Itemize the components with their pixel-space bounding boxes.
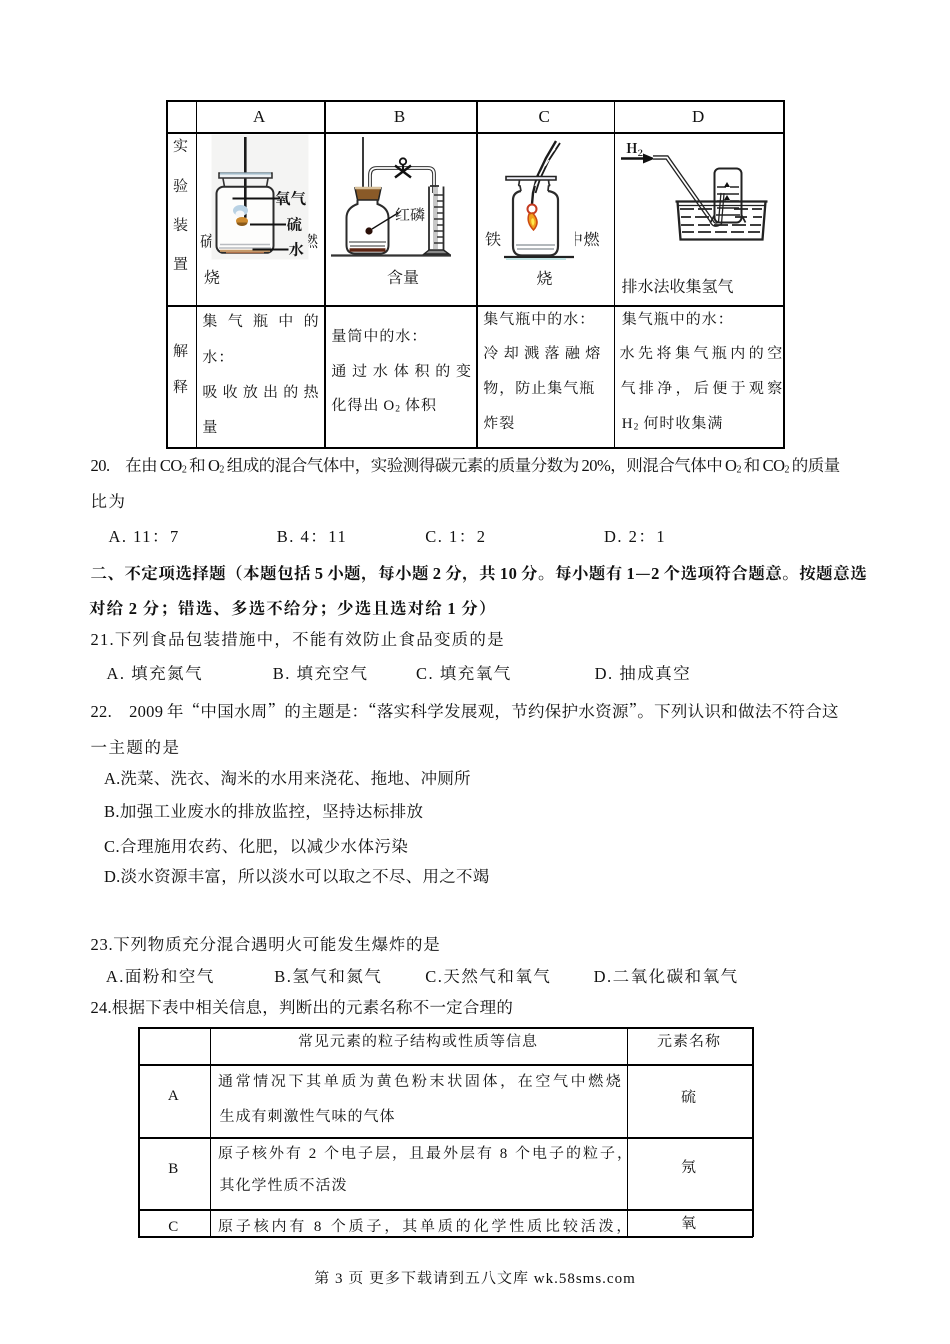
svg-text:红磷: 红磷 — [395, 204, 425, 225]
svg-text:含量: 含量 — [387, 265, 419, 288]
svg-text:烧: 烧 — [537, 266, 553, 289]
svg-text:水: 水 — [288, 238, 304, 260]
svg-text:排水法收集氢气: 排水法收集氢气 — [621, 274, 733, 297]
svg-text:硫: 硫 — [286, 213, 302, 235]
svg-text:H2: H2 — [626, 137, 643, 159]
svg-text:铁: 铁 — [485, 227, 501, 250]
svg-text:烧: 烧 — [204, 265, 220, 288]
svg-text:燃: 燃 — [584, 227, 601, 250]
svg-text:氧气: 氧气 — [275, 187, 307, 209]
